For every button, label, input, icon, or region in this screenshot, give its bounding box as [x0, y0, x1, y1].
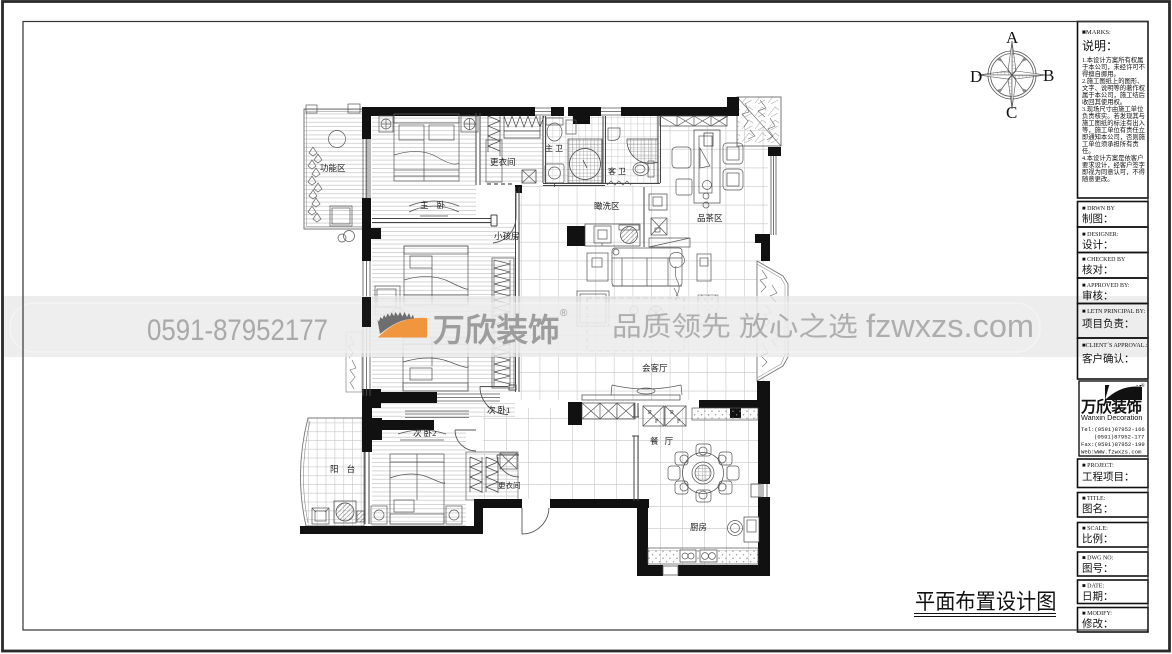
svg-text:Web:WWW.fzwxzs.com: Web:WWW.fzwxzs.com [1081, 449, 1142, 456]
svg-text:Wanxin Decoration: Wanxin Decoration [1081, 413, 1142, 422]
svg-text:厨房: 厨房 [690, 522, 707, 532]
svg-text:4.本设计方案是依客户: 4.本设计方案是依客户 [1082, 153, 1143, 162]
svg-text:即通知本公司，否则施: 即通知本公司，否则施 [1082, 132, 1146, 141]
svg-text:任。: 任。 [1082, 146, 1095, 155]
svg-text:R: R [648, 410, 652, 416]
svg-text:■ MODIFY:: ■ MODIFY: [1082, 611, 1112, 617]
svg-text:D: D [970, 67, 982, 86]
svg-text:平面布置设计图: 平面布置设计图 [915, 589, 1056, 614]
svg-text:小孩房: 小孩房 [494, 231, 520, 241]
svg-text:■ TITLE:: ■ TITLE: [1082, 496, 1106, 502]
svg-text:文字、说明等的著作权: 文字、说明等的著作权 [1082, 83, 1146, 92]
svg-text:图号：: 图号： [1082, 563, 1114, 575]
svg-text:更衣间: 更衣间 [498, 480, 521, 490]
svg-text:0591-87952177: 0591-87952177 [147, 314, 328, 347]
svg-text:R: R [670, 410, 674, 416]
svg-text:收回其使用权。: 收回其使用权。 [1082, 97, 1126, 106]
svg-text:工程项目：: 工程项目： [1082, 471, 1135, 483]
svg-text:阳 台: 阳 台 [330, 464, 358, 474]
svg-text:次 卧2: 次 卧2 [413, 428, 436, 438]
svg-text:万欣装饰: 万欣装饰 [433, 312, 560, 348]
svg-text:Tel:(0591)87952-166: Tel:(0591)87952-166 [1081, 426, 1145, 433]
svg-text:B: B [1043, 66, 1054, 85]
svg-text:要求设计，经客户签字: 要求设计，经客户签字 [1082, 160, 1145, 169]
svg-text:1.本设计方案所有权属: 1.本设计方案所有权属 [1082, 55, 1143, 64]
svg-text:Fax:(0591)87952-199: Fax:(0591)87952-199 [1081, 441, 1145, 448]
svg-text:主 卫: 主 卫 [545, 143, 563, 153]
svg-text:会客厅: 会客厅 [642, 363, 668, 373]
svg-text:工单位须承担所有责: 工单位须承担所有责 [1082, 139, 1139, 148]
svg-text:■ LETN PRINCIPAL BY:: ■ LETN PRINCIPAL BY: [1082, 309, 1145, 315]
svg-text:说明：: 说明： [1082, 38, 1118, 53]
svg-text:制图：: 制图： [1082, 212, 1114, 225]
svg-text:3.现场尺寸由施工单位: 3.现场尺寸由施工单位 [1082, 104, 1144, 113]
svg-text:即视为同意认可，不得: 即视为同意认可，不得 [1082, 167, 1145, 176]
svg-text:品质领先 放心之选: 品质领先 放心之选 [612, 312, 858, 342]
svg-text:设计：: 设计： [1082, 238, 1114, 251]
svg-text:■ SCALE:: ■ SCALE: [1082, 526, 1108, 532]
svg-text:(0591)87952-177: (0591)87952-177 [1094, 434, 1144, 441]
svg-text:品茶区: 品茶区 [697, 213, 723, 223]
svg-text:客户确认：: 客户确认： [1082, 352, 1135, 365]
svg-text:负责核实。若发现其与: 负责核实。若发现其与 [1082, 111, 1145, 120]
svg-text:餐 厅: 餐 厅 [650, 436, 675, 446]
svg-text:修改：: 修改： [1082, 617, 1114, 630]
svg-text:■MARKS:: ■MARKS: [1082, 29, 1111, 36]
svg-text:■ DRWN BY: ■ DRWN BY [1082, 206, 1116, 212]
svg-text:功能区: 功能区 [320, 163, 346, 173]
svg-text:瞰洗区: 瞰洗区 [594, 201, 620, 211]
svg-text:更衣间: 更衣间 [490, 157, 516, 167]
svg-text:审核：: 审核： [1082, 289, 1114, 302]
svg-text:主 卧: 主 卧 [420, 200, 448, 210]
svg-text:■ CHECKED BY: ■ CHECKED BY [1082, 257, 1126, 263]
svg-text:■ APPROVED BY:: ■ APPROVED BY: [1082, 283, 1130, 289]
svg-text:施工图纸的标注有出入: 施工图纸的标注有出入 [1082, 118, 1146, 127]
svg-text:项目负责：: 项目负责： [1082, 317, 1135, 330]
svg-text:比例：: 比例： [1082, 532, 1114, 545]
svg-text:®: ® [1141, 383, 1145, 389]
svg-text:得擅自挪用。: 得擅自挪用。 [1082, 69, 1120, 78]
svg-text:随意更改。: 随意更改。 [1082, 174, 1113, 183]
svg-text:于本公司，未经许可不: 于本公司，未经许可不 [1082, 62, 1146, 71]
svg-text:■ DATE:: ■ DATE: [1082, 584, 1104, 590]
svg-text:A: A [1006, 28, 1019, 47]
svg-text:■ DWG NO:: ■ DWG NO: [1082, 556, 1114, 562]
svg-text:属于本公司，施工结后: 属于本公司，施工结后 [1082, 90, 1145, 99]
svg-text:图名：: 图名： [1082, 502, 1114, 515]
svg-text:fzwxzs.com: fzwxzs.com [866, 308, 1034, 344]
svg-text:2.施工图纸上的图形、: 2.施工图纸上的图形、 [1082, 76, 1143, 85]
svg-text:®: ® [560, 308, 568, 319]
svg-text:等，施工单位有责任立: 等，施工单位有责任立 [1082, 125, 1145, 134]
svg-text:次 卧1: 次 卧1 [487, 405, 510, 415]
svg-text:核对：: 核对： [1082, 263, 1114, 276]
svg-text:■CLIENT´S APPROVAL.:: ■CLIENT´S APPROVAL.: [1082, 343, 1148, 349]
svg-text:客 卫: 客 卫 [608, 166, 626, 176]
svg-text:■ PROJECT:: ■ PROJECT: [1082, 463, 1114, 469]
svg-text:■ DESIGNER:: ■ DESIGNER: [1082, 232, 1119, 238]
svg-text:C: C [1006, 103, 1017, 122]
svg-text:日期：: 日期： [1082, 591, 1114, 603]
